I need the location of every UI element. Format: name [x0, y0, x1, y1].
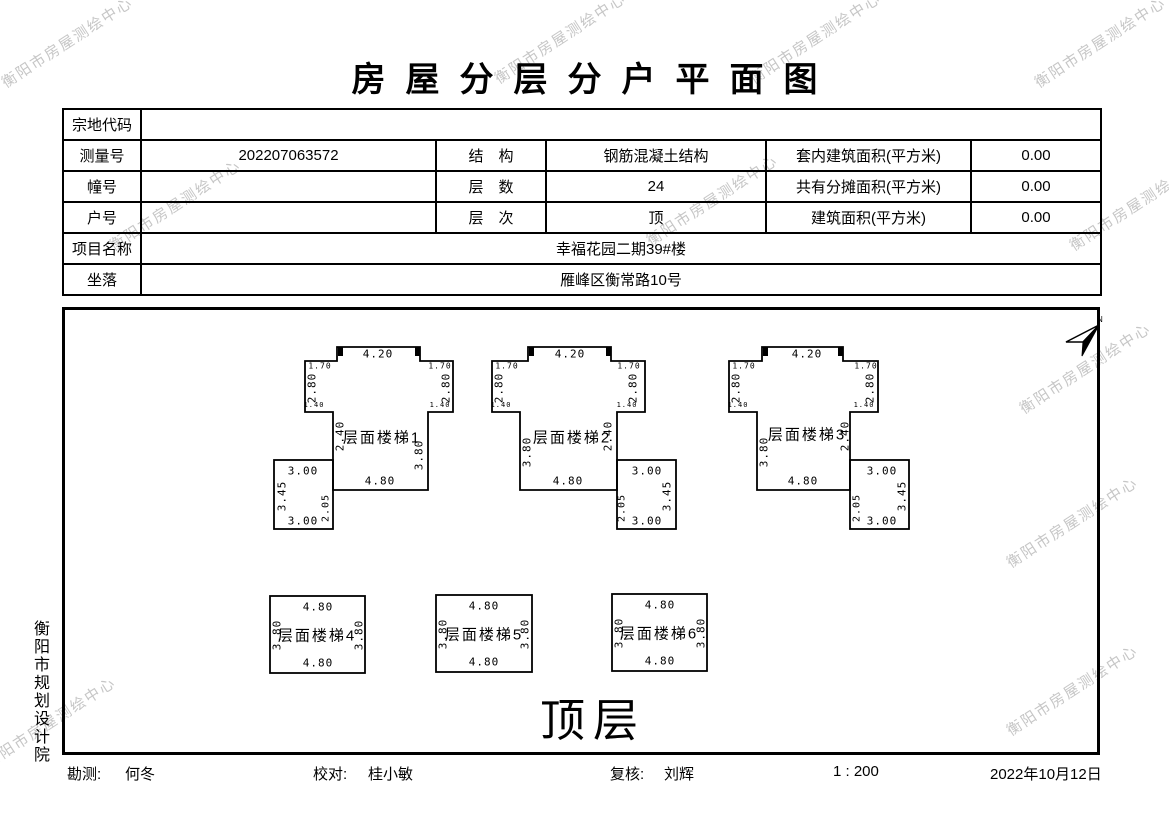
column-tab [529, 347, 534, 356]
stair-name-label: 层面楼梯1 [343, 427, 421, 448]
dimension-label: 1.70 [308, 362, 331, 371]
dimension-label: 3.00 [867, 515, 898, 528]
surveyor-name: 何冬 [125, 763, 155, 784]
stair-name-label: 层面楼梯6 [620, 623, 698, 644]
dimension-label: 2.05 [617, 494, 628, 522]
dimension-label: 4.80 [788, 475, 819, 488]
dimension-label: 3.80 [521, 437, 534, 468]
stair-name-label: 层面楼梯2 [533, 427, 611, 448]
dimension-label: 3.00 [632, 515, 663, 528]
dimension-label: 3.80 [413, 440, 426, 471]
floor-level-label: 顶层 [540, 684, 646, 749]
stair-name-label: 层面楼梯4 [278, 625, 356, 646]
institute-name: 衡阳市规划设计院 [27, 620, 51, 764]
dimension-label: 1.70 [428, 362, 451, 371]
dimension-label: 1.70 [732, 362, 755, 371]
dimension-label: 4.20 [792, 348, 823, 361]
dimension-label: 1.40 [491, 401, 512, 409]
dimension-label: 4.80 [303, 601, 334, 614]
date-value: 2022年10月12日 [990, 763, 1102, 784]
dimension-label: 3.00 [867, 465, 898, 478]
dimension-label: 1.70 [495, 362, 518, 371]
dimension-label: 3.00 [288, 515, 319, 528]
checker-name: 桂小敏 [368, 763, 413, 784]
dimension-label: 2.80 [864, 373, 877, 404]
dimension-label: 4.80 [553, 475, 584, 488]
dimension-label: 4.80 [303, 657, 334, 670]
dimension-label: 3.00 [288, 465, 319, 478]
dimension-label: 2.05 [852, 494, 863, 522]
column-tab [606, 347, 611, 356]
dimension-label: 1.40 [728, 401, 749, 409]
dimension-label: 2.05 [321, 494, 332, 522]
dimension-label: 4.80 [645, 599, 676, 612]
dimension-label: 1.40 [430, 401, 451, 409]
stair-name-label: 层面楼梯3 [768, 424, 846, 445]
floor-plan-document: 衡阳市房屋测绘中心衡阳市房屋测绘中心衡阳市房屋测绘中心衡阳市房屋测绘中心衡阳市房… [0, 0, 1169, 827]
dimension-label: 3.00 [632, 465, 663, 478]
dimension-label: 4.20 [363, 348, 394, 361]
dimension-label: 3.80 [353, 620, 366, 651]
checker-label: 校对: [313, 763, 347, 784]
dimension-label: 2.80 [493, 373, 506, 404]
dimension-label: 1.40 [304, 401, 325, 409]
dimension-label: 3.45 [896, 481, 909, 512]
dimension-label: 3.80 [695, 618, 708, 649]
scale-value: 1 : 200 [833, 763, 879, 780]
column-tab [838, 347, 843, 356]
dimension-label: 2.80 [627, 373, 640, 404]
dimension-label: 4.80 [469, 656, 500, 669]
dimension-label: 3.80 [519, 619, 532, 650]
stair-name-label: 层面楼梯5 [445, 624, 523, 645]
dimension-label: 2.40 [602, 421, 615, 452]
dimension-label: 2.40 [839, 421, 852, 452]
dimension-label: 2.80 [440, 373, 453, 404]
dimension-label: 1.40 [617, 401, 638, 409]
dimension-label: 4.80 [469, 600, 500, 613]
column-tab [763, 347, 768, 356]
dimension-label: 4.20 [555, 348, 586, 361]
dimension-label: 2.80 [306, 373, 319, 404]
dimension-label: 3.45 [276, 481, 289, 512]
surveyor-label: 勘测: [67, 763, 101, 784]
column-tab [415, 347, 420, 356]
dimension-label: 4.80 [645, 655, 676, 668]
dimension-label: 1.70 [617, 362, 640, 371]
reviewer-name: 刘辉 [664, 763, 694, 784]
north-arrow-icon: N [1040, 312, 1110, 367]
dimension-label: 1.70 [854, 362, 877, 371]
dimension-label: 1.40 [854, 401, 875, 409]
dimension-label: 4.80 [365, 475, 396, 488]
north-label: N [1097, 315, 1103, 324]
reviewer-label: 复核: [610, 763, 644, 784]
dimension-label: 3.45 [661, 481, 674, 512]
column-tab [338, 347, 343, 356]
dimension-label: 2.80 [730, 373, 743, 404]
